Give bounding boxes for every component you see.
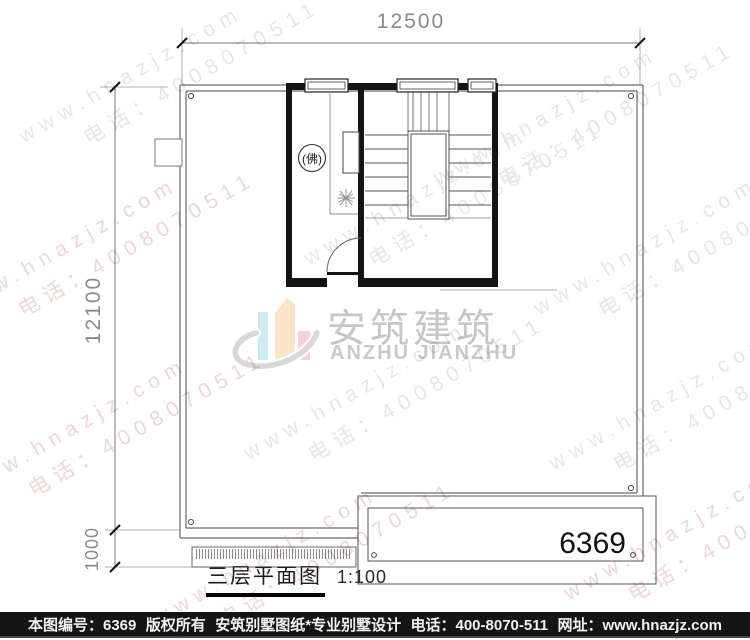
- dimension-top-label: 12500: [377, 10, 445, 33]
- logo-bar-peach: [275, 298, 295, 360]
- caption-scale: 1:100: [337, 567, 387, 588]
- altar-cabinet: [343, 132, 359, 173]
- company-logo: 安筑建筑 ANZHU JIANZHU: [231, 292, 531, 382]
- footer-bar: 本图编号：6369 版权所有 安筑别墅图纸*专业别墅设计 电话：400-8070…: [0, 612, 750, 638]
- stair-block-walls: [286, 83, 498, 287]
- plan-number: 6369: [559, 527, 626, 560]
- dimension-left-small-label: 1000: [82, 527, 102, 571]
- door-swing-arc: [327, 238, 361, 272]
- drawing-sheet: 12500 12100 1000: [0, 0, 750, 640]
- footer-company: 安筑别墅图纸*专业别墅设计: [215, 614, 401, 635]
- footer-copyright: 版权所有: [146, 614, 206, 635]
- plant-symbol: [337, 189, 355, 207]
- drawing-caption: 三层平面图 1:100: [206, 560, 387, 597]
- wall-recess: [155, 139, 182, 166]
- plan-number-box: 6369: [358, 496, 656, 584]
- buddha-symbol-label: (佛): [302, 152, 322, 166]
- logo-icon: [231, 292, 326, 382]
- dimension-left-label: 12100: [82, 276, 105, 344]
- logo-name-en: ANZHU JIANZHU: [330, 342, 518, 365]
- footer-sheet-number: 本图编号：6369: [28, 614, 136, 635]
- footer-website: 网址：www.hnazjz.com: [558, 614, 722, 635]
- footer-phone: 电话：400-8070-511: [411, 614, 549, 635]
- buddha-room: (佛): [299, 91, 362, 274]
- caption-title: 三层平面图: [206, 560, 325, 597]
- stairwell: [365, 91, 491, 219]
- dimension-top: 12500: [177, 10, 645, 85]
